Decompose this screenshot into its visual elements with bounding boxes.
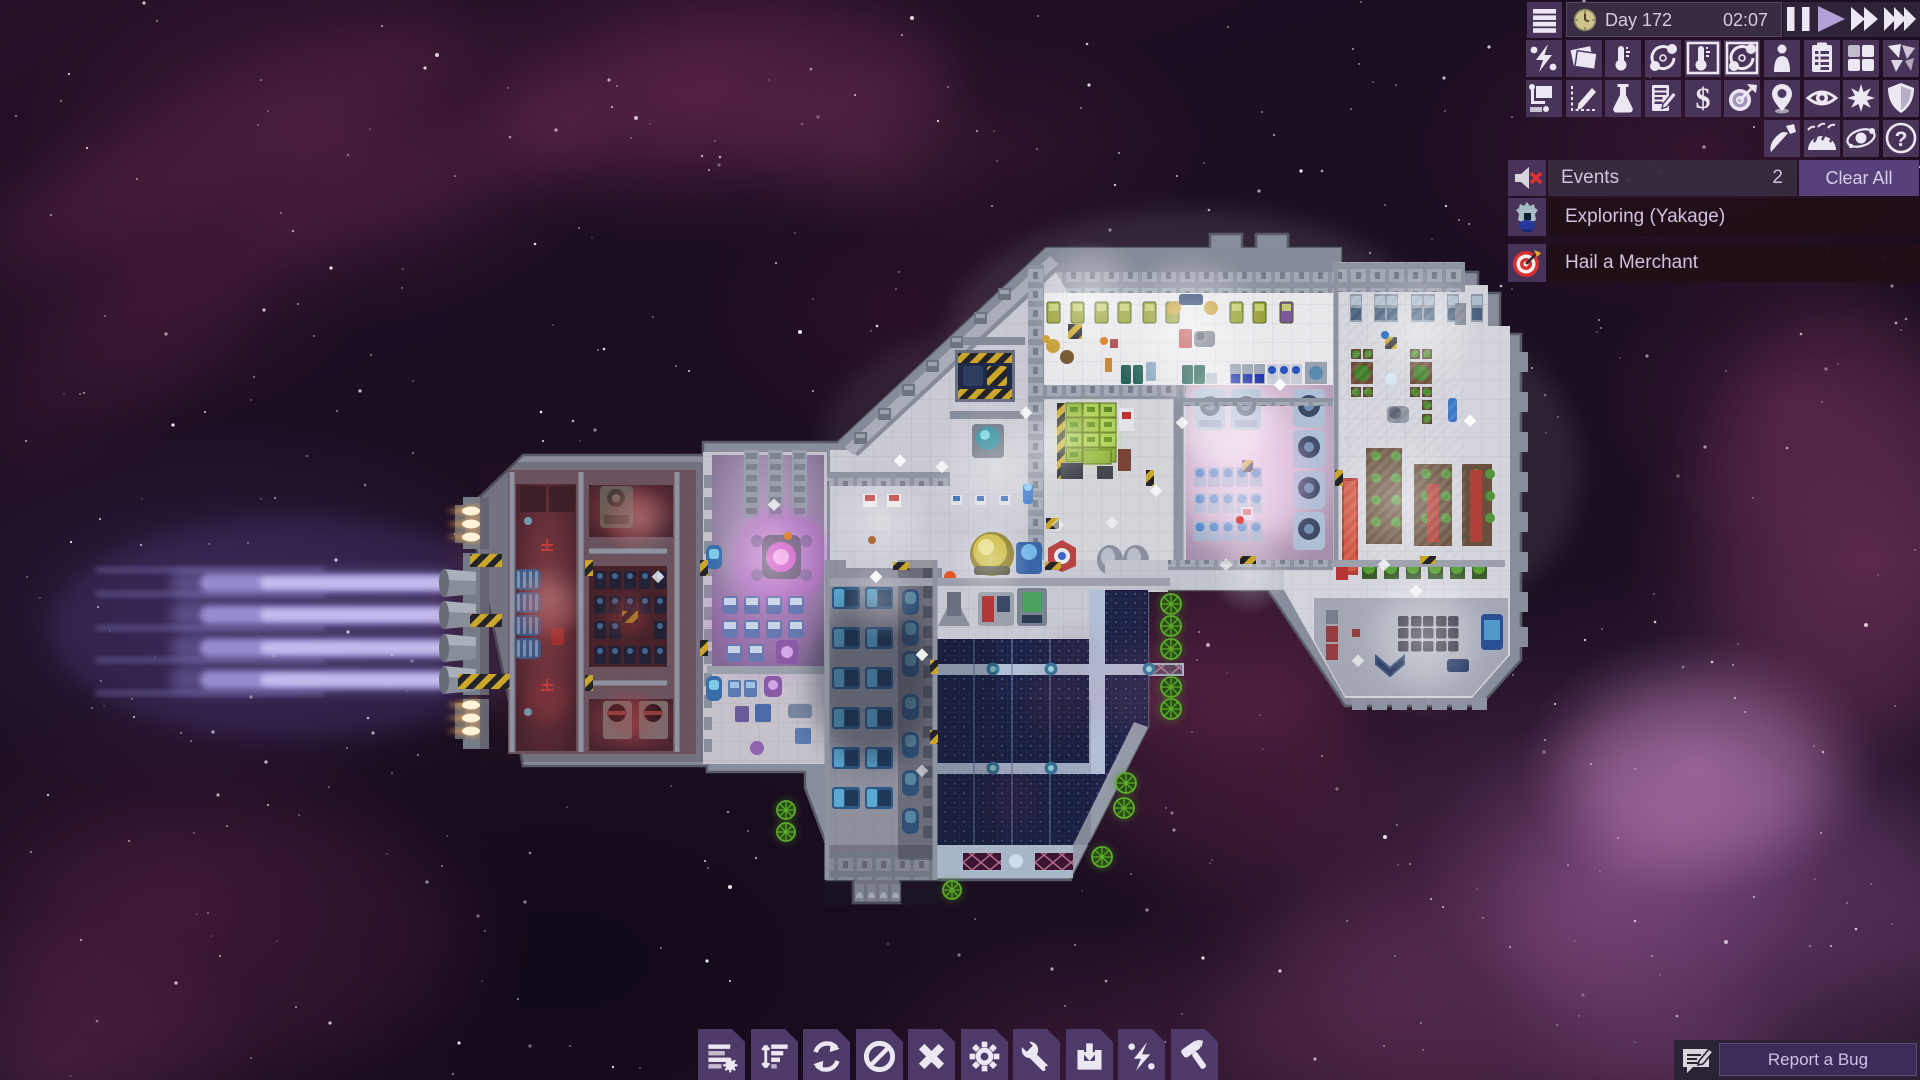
svg-text:?: ? (1895, 128, 1908, 151)
svg-text:$: $ (1696, 82, 1711, 115)
